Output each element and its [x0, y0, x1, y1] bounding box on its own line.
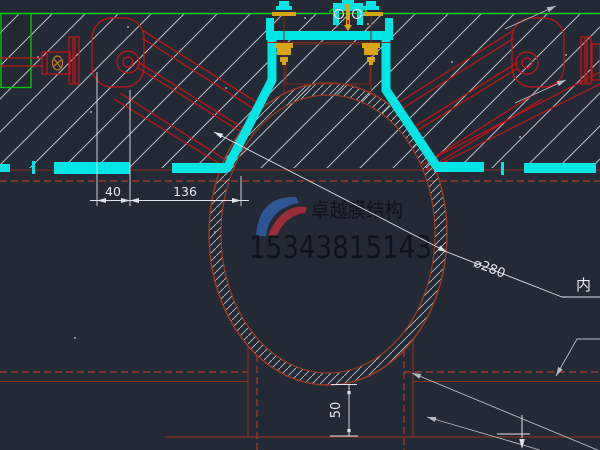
cad-viewport: 卓越膜结构 15343815143: [0, 0, 600, 450]
watermark-company: 卓越膜结构: [311, 198, 403, 222]
dim-136-label: 136: [173, 184, 197, 199]
watermark-phone: 15343815143: [249, 230, 432, 266]
leader-right-label: 内: [576, 276, 591, 294]
cad-drawing: 卓越膜结构 15343815143: [0, 0, 600, 450]
dim-50-label: 50: [329, 402, 344, 419]
dim-40-label: 40: [105, 184, 121, 199]
